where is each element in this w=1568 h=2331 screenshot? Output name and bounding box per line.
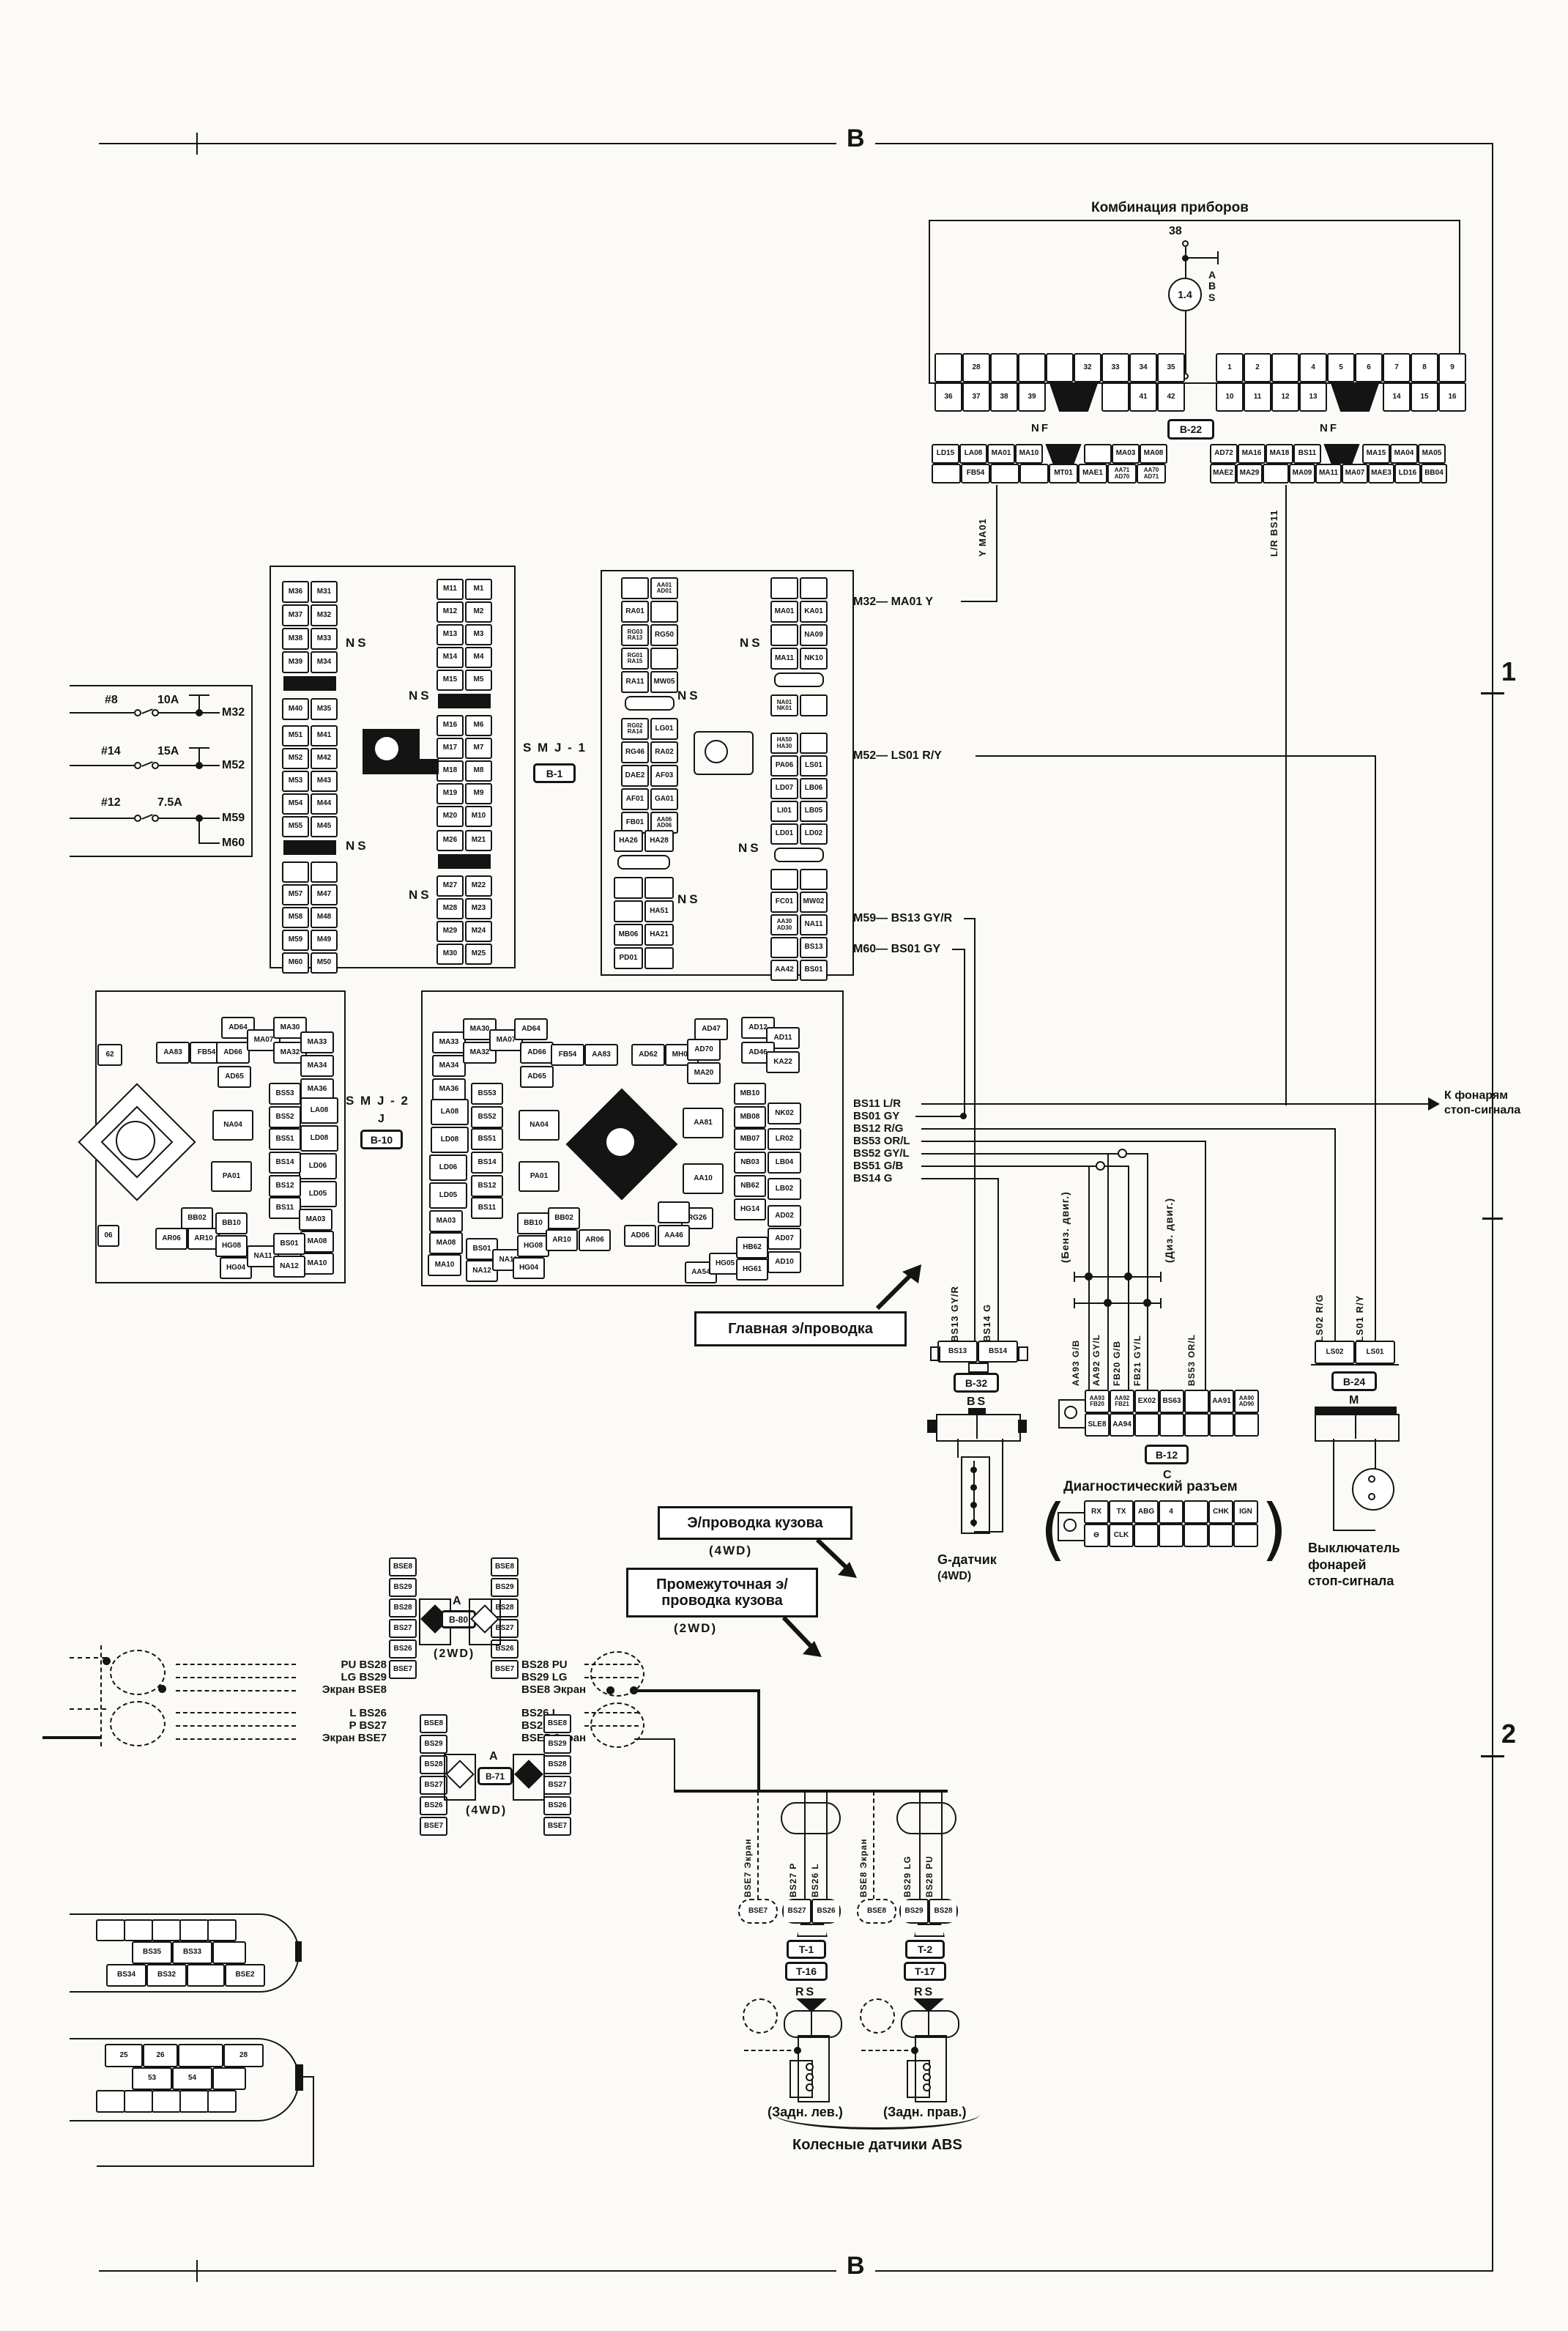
gsensor-caption-sub: (4WD) — [937, 1569, 971, 1584]
pin-cell-blank — [770, 869, 798, 890]
pin-cell: AA30 AD30 — [770, 914, 798, 935]
pin-cell: NA04 — [519, 1110, 560, 1141]
pin-cell: AA10 — [683, 1163, 724, 1194]
pin-cell: BSE2 — [225, 1964, 265, 1987]
pin-cell: BB10 — [215, 1212, 248, 1234]
wire-line — [70, 712, 134, 714]
wire-line — [974, 1531, 1003, 1533]
pin-cell-blank — [621, 577, 649, 599]
pin-cell: DAE2 — [621, 765, 649, 787]
pin-row: M52M42 — [282, 748, 338, 769]
pin-row: BS26 — [389, 1639, 417, 1659]
pin-cell-blank — [124, 1919, 153, 1941]
wire-line-dashed — [70, 1657, 106, 1659]
pin-cell: AF01 — [621, 788, 649, 810]
pin-cell-blank — [178, 2044, 223, 2067]
pin-cell: MA33 — [300, 1031, 334, 1053]
wire-line-dashed — [861, 2050, 915, 2051]
pin-cell: M36 — [282, 581, 309, 603]
pin-cell: BSE7 — [420, 1817, 447, 1836]
paren-right: ) — [1261, 1496, 1288, 1563]
diagram-graphic — [817, 1540, 848, 1569]
pin-row: BSE7 — [491, 1660, 519, 1679]
pin-cell: LD07 — [770, 778, 798, 799]
pair1-left-labels: PU BS28LG BS29Экран BSE8 — [299, 1659, 387, 1696]
smj1-col: M11M1M12M2M13M3M14M4M15M5M16M6M17M7M18M8… — [436, 579, 492, 829]
pin-row: RA11MW05 — [621, 671, 678, 693]
wire-line-dashed — [176, 1664, 296, 1665]
pin-cell: PA01 — [211, 1161, 252, 1192]
pin-cell: AD72 — [1210, 444, 1238, 464]
frame-tick — [1481, 1755, 1504, 1757]
wire-label-vertical: BS27 P — [788, 1828, 798, 1897]
pin-cell-blank — [1134, 1524, 1159, 1547]
pin-cell: RX — [1084, 1500, 1109, 1524]
pin-cell: M2 — [465, 601, 492, 623]
pin-cell: LD01 — [770, 823, 798, 845]
keyway-bar — [283, 676, 335, 691]
junction-cap — [1160, 1298, 1162, 1308]
pin-cell: AA93 FB20 — [1085, 1390, 1110, 1413]
pin-cell: 33 — [1101, 353, 1129, 382]
pin-cell: M54 — [282, 793, 309, 815]
contact-dot — [970, 1484, 977, 1491]
pin-cell: BS11 — [1293, 444, 1321, 464]
arrow-icon — [1428, 1097, 1440, 1111]
keyway-shape — [420, 759, 439, 774]
coil-bump — [806, 2083, 814, 2091]
pin-row: M55M45 — [282, 816, 338, 837]
pin-cell: HA28 — [644, 830, 674, 852]
pin-cell: M12 — [436, 601, 464, 623]
pin-cell: MA05 — [1418, 444, 1446, 464]
pin-cell: M57 — [282, 884, 309, 905]
pin-cell-blank — [1101, 382, 1129, 412]
pin-cell: BS01 — [273, 1233, 305, 1255]
callout-arrow — [870, 1261, 929, 1314]
pin-row: HA51 — [614, 900, 674, 922]
pin-cell: 53 — [132, 2067, 172, 2090]
diag-lower-row: ⊖CLK — [1084, 1524, 1258, 1547]
connector-divider — [976, 1414, 978, 1439]
pin-row: HA50 HA30 — [770, 733, 828, 754]
wire-label-vertical: BS29 LG — [902, 1828, 913, 1897]
pin-cell: 54 — [172, 2067, 212, 2090]
pin-cell: 12 — [1271, 382, 1299, 412]
pin-cell: LD16 — [1394, 464, 1421, 483]
wire-line-dashed — [176, 1725, 296, 1727]
pin-row: M53M43 — [282, 771, 338, 792]
pin-cell: BSE8 — [420, 1714, 447, 1733]
wire-label: BS01 GY — [853, 1110, 910, 1122]
wire-label: BS51 G/B — [853, 1160, 910, 1172]
section-marker-bottom: B — [836, 2250, 875, 2282]
pin-row: BSE7 — [420, 1817, 447, 1836]
pin-cell: AD06 — [624, 1225, 656, 1247]
pin-cell: MA03 — [1112, 444, 1140, 464]
ns-label: NS — [677, 689, 701, 703]
pin-cell: MA10 — [428, 1254, 461, 1276]
pin-cell: IGN — [1233, 1500, 1258, 1524]
connector-code-b24: B-24 — [1331, 1371, 1377, 1391]
pin-row: M54M44 — [282, 793, 338, 815]
pin-cell: AA81 — [683, 1108, 724, 1138]
abs-warning-lamp: 1.4 — [1168, 278, 1202, 311]
pin-cell: MA16 — [1238, 444, 1266, 464]
pin-row: PD01 — [614, 947, 674, 969]
pin-cell: M55 — [282, 816, 309, 837]
shield-pin: BSE8 — [857, 1899, 896, 1924]
pin-row: M38M33 — [282, 628, 338, 650]
pin-cell: 26 — [143, 2044, 178, 2067]
wire-link: M32— MA01 Y — [853, 595, 933, 609]
pin-cell: M58 — [282, 907, 309, 928]
fuse-output: M59 — [222, 811, 245, 826]
pin-cell: M39 — [282, 651, 309, 673]
connector-code-t2: T-2 — [905, 1940, 945, 1959]
wire-line — [997, 1178, 999, 1342]
wire-line — [757, 1689, 760, 1791]
fusebox-edge — [70, 685, 253, 686]
pin-row: RG01 RA15 — [621, 648, 678, 670]
wire-label: LS01 R/Y — [1354, 1267, 1365, 1342]
pin-cell: MA04 — [1390, 444, 1418, 464]
pin-row: BSE8 — [543, 1714, 571, 1733]
pin-cell: AA90 AD90 — [1234, 1390, 1259, 1413]
pin-cell: BS63 — [1159, 1390, 1184, 1413]
sensor-head-divider — [928, 2010, 929, 2035]
frame-tick — [1481, 692, 1504, 694]
pin-cell: MA15 — [1362, 444, 1390, 464]
pin-cell: MA01 — [987, 444, 1015, 464]
smj1-col: M36M31M37M32M38M33M39M34M40M35 — [282, 581, 338, 722]
pin-cell: BS53 — [471, 1083, 503, 1105]
pin-cell: PA01 — [519, 1161, 560, 1192]
pin-row: M36M31 — [282, 581, 338, 603]
pin-cell: MW05 — [650, 671, 678, 693]
pin-row: BS29 — [543, 1735, 571, 1754]
wire-line — [974, 918, 976, 1342]
pin-row: BSE7 — [543, 1817, 571, 1836]
wire-label-lr-bs11: L/R BS11 — [1268, 489, 1279, 557]
pin-cell: MW02 — [800, 892, 828, 913]
smj1-col: M51M41M52M42M53M43M54M44M55M45M57M47M58M… — [282, 725, 338, 975]
pin-cell: BSE7 — [491, 1660, 519, 1679]
wire-line — [919, 1790, 921, 1900]
pin-cell: NA12 — [273, 1256, 305, 1278]
pin-cell: LD05 — [429, 1182, 467, 1209]
shield-wire — [757, 1791, 759, 1900]
junction-dot — [911, 2047, 918, 2054]
pin-cell: MA08 — [1140, 444, 1167, 464]
wire-label: BSE8 Экран — [521, 1683, 586, 1696]
pin-cell-blank — [1184, 1500, 1208, 1524]
pin-cell-blank — [614, 877, 643, 899]
pin-cell: BS29 — [543, 1735, 571, 1754]
connector-code-b32: B-32 — [954, 1373, 999, 1393]
block2-col: HA26HA28HA51MB06HA21PD01 — [614, 830, 674, 971]
b80-column-left: BSE8BS29BS28BS27BS26BSE7 — [389, 1557, 417, 1680]
wire-label: BS14 G — [853, 1172, 910, 1185]
junction-dot — [794, 2047, 801, 2054]
pin-cell: M26 — [436, 830, 464, 851]
pin-row: BSE8 — [420, 1714, 447, 1733]
wire-label-vertical: BSE8 Экран — [858, 1828, 869, 1897]
pin-cell: M22 — [465, 875, 492, 897]
pin-cell: MB08 — [734, 1106, 766, 1128]
pin-row — [614, 877, 674, 899]
coil-bump — [806, 2063, 814, 2071]
pin-row: M17M7 — [436, 738, 492, 759]
wire-line — [915, 1116, 964, 1117]
frame-tick — [196, 2260, 198, 2282]
wire-label: BS13 GY/R — [949, 1267, 960, 1342]
wire-line — [634, 1738, 675, 1740]
pin-row — [282, 839, 338, 860]
pin-cell: LI01 — [770, 801, 798, 822]
ns-label: NS — [346, 636, 369, 651]
pin-cell-blank — [212, 2067, 246, 2090]
pin-row: BS13 — [770, 937, 828, 958]
connector-code-t16: T-16 — [785, 1962, 828, 1981]
wire-line — [159, 712, 220, 714]
junction-cap — [1074, 1272, 1075, 1282]
switch-caption: Выключатель фонарей стоп-сигнала — [1308, 1540, 1400, 1590]
pin-cell: 11 — [1244, 382, 1271, 412]
wire-label-vertical: BS28 PU — [924, 1828, 935, 1897]
ns-label: NS — [409, 689, 432, 703]
keyway-slot — [617, 855, 669, 870]
pin-cell: M60 — [282, 952, 309, 974]
connector-code-b22: B-22 — [1167, 419, 1214, 440]
wire-line-dashed — [176, 1677, 296, 1678]
pin-cell: BS26 — [389, 1639, 417, 1659]
pin-cell: MA07 — [1342, 464, 1368, 483]
cluster-title: Комбинация приборов — [1091, 199, 1249, 217]
pin-cell: NB62 — [734, 1175, 766, 1197]
connector-tab — [914, 1924, 945, 1937]
pin-cell: AD66 — [216, 1042, 250, 1064]
pin-row: M37M32 — [282, 604, 338, 626]
pin-cell-blank — [96, 1919, 125, 1941]
pin-cell: AA71 AD70 — [1107, 464, 1137, 483]
pin-cell: 41 — [1129, 382, 1157, 412]
fuse-terminal — [134, 762, 141, 769]
frame-right-rule — [1492, 143, 1493, 2272]
pin-cell-blank — [1234, 1413, 1259, 1437]
bs-wire-list: BS11 L/RBS01 GYBS12 R/GBS53 OR/LBS52 GY/… — [853, 1097, 910, 1185]
wire-link: M59— BS13 GY/R — [853, 911, 952, 926]
pin-cell: M49 — [311, 930, 338, 951]
pin-cell: GA01 — [650, 788, 678, 810]
pin-row — [282, 861, 338, 883]
pin-row: M51M41 — [282, 725, 338, 746]
pin-cell: BS29 — [420, 1735, 447, 1754]
pin-cell: M28 — [436, 898, 464, 919]
pin-cell: HA51 — [644, 900, 674, 922]
callout-arrow — [778, 1612, 829, 1663]
pin-row: M29M24 — [436, 921, 492, 942]
nf-label-right: NF — [1320, 422, 1339, 436]
keyway-hole — [375, 737, 398, 760]
wire-line — [634, 1689, 760, 1692]
wire-line — [1333, 1530, 1375, 1531]
pin-row: HA26HA28 — [614, 830, 674, 852]
wire-label-vertical: FB20 G/B — [1112, 1310, 1122, 1386]
junction-dot — [196, 709, 203, 716]
pin-cell: BS11 — [269, 1197, 301, 1219]
pin-cell: MA10 — [1015, 444, 1043, 464]
pin-cell: BS28 — [543, 1755, 571, 1774]
pin-cell: LB06 — [800, 778, 828, 799]
pin-cell: 4 — [1299, 353, 1327, 382]
wire-line — [1205, 1141, 1206, 1390]
pin-cell: BS28 — [389, 1598, 417, 1617]
pin-cell: 8 — [1411, 353, 1438, 382]
pin-row: MA11NK10 — [770, 648, 828, 670]
pin-cell: M47 — [311, 884, 338, 905]
smj2-sub: J — [378, 1112, 384, 1127]
pin-cell: RG01 RA15 — [621, 648, 649, 670]
wire-label: Экран BSE8 — [299, 1683, 387, 1696]
junction-dot — [606, 1686, 614, 1694]
pin-row: BSE7 — [389, 1660, 417, 1679]
fuse-number: #12 — [101, 796, 121, 810]
connector-tab — [1315, 1407, 1397, 1414]
pin-cell: 34 — [1129, 353, 1157, 382]
pin-cell-blank — [650, 648, 678, 670]
pin-cell: LD05 — [299, 1181, 337, 1207]
pin-cell: CLK — [1109, 1524, 1134, 1547]
pin-cell: BB02 — [548, 1207, 580, 1229]
pin-cell: 13 — [1299, 382, 1327, 412]
wire-label-y-ma01: Y MA01 — [977, 489, 988, 557]
pin-cell-blank — [179, 1919, 209, 1941]
pin-row: LI01LB05 — [770, 801, 828, 822]
pin-cell: M7 — [465, 738, 492, 759]
pin-cell: MA34 — [300, 1055, 334, 1077]
pin-cell: M59 — [282, 930, 309, 951]
wire-line — [921, 1153, 1147, 1155]
pin-row: RA01 — [621, 601, 678, 623]
pin-row: NA01 NK01 — [770, 694, 828, 716]
pin-cell: M34 — [311, 651, 338, 673]
pin-cell: 9 — [1438, 353, 1466, 382]
pin-row: MB06HA21 — [614, 924, 674, 946]
pin-cell-blank — [1184, 1390, 1209, 1413]
junction-dot — [1143, 1299, 1151, 1307]
pin-cell: FB54 — [551, 1044, 584, 1066]
contact-dot — [970, 1502, 977, 1508]
pin-cell: MB10 — [734, 1083, 766, 1105]
pin-cell: AA70 AD71 — [1137, 464, 1166, 483]
pin-row: M26M21 — [436, 830, 492, 851]
wire-line — [1333, 1439, 1334, 1530]
row-gap — [1185, 382, 1216, 412]
pin-row — [614, 853, 674, 875]
diag-upper-row: AA93 FB20AA92 FB21EX02BS63AA91AA90 AD90 — [1085, 1390, 1259, 1413]
pin-cell: 39 — [1018, 382, 1046, 412]
pin-cell: 10 — [1216, 382, 1244, 412]
pin-cell: M14 — [436, 647, 464, 668]
shield-pin: BSE7 — [738, 1899, 778, 1924]
section-marker-top: B — [836, 123, 875, 155]
shield-symbol — [860, 1998, 895, 2034]
pin-cell-blank — [1159, 1524, 1184, 1547]
callout-body-sub: (4WD) — [709, 1543, 752, 1558]
sensor-head-divider — [811, 2010, 812, 2035]
grommet-hole — [116, 1121, 155, 1160]
pin-row: BS27 — [543, 1776, 571, 1795]
pin-cell: M5 — [465, 670, 492, 691]
fuse-number: #14 — [101, 744, 121, 759]
pin-cell-blank — [207, 2090, 237, 2113]
pin-cell: BSE8 — [543, 1714, 571, 1733]
junction-cap — [1074, 1298, 1075, 1308]
pin-cell: LS01 — [1355, 1341, 1395, 1364]
pin-cell: PD01 — [614, 947, 643, 969]
pin-cell: M53 — [282, 771, 309, 792]
pin-row: BS29 — [491, 1578, 519, 1597]
lamp-name: A B S — [1208, 270, 1216, 303]
pin-row: RG03 RA13RG50 — [621, 624, 678, 646]
keyway-icon — [1321, 444, 1362, 464]
pin-cell: AA91 — [1209, 1390, 1234, 1413]
wire-line — [996, 485, 997, 602]
pin-cell: 06 — [97, 1225, 119, 1247]
frame-bottom-rule — [99, 2270, 1493, 2272]
wire-line — [921, 1141, 1205, 1142]
pin-row: BS27 — [389, 1619, 417, 1638]
pin-cell: RG46 — [621, 741, 649, 763]
pin-row — [770, 846, 828, 867]
pin-cell: M8 — [465, 760, 492, 782]
pin-cell: AD65 — [520, 1066, 554, 1088]
wire-label-vertical: BS26 L — [810, 1828, 820, 1897]
pin-cell: BS52 — [471, 1106, 503, 1128]
pin-cell: BS14 — [471, 1152, 503, 1174]
pin-row: RG46RA02 — [621, 741, 678, 763]
pin-cell-blank — [770, 577, 798, 599]
pin-cell: M45 — [311, 816, 338, 837]
wire-line — [804, 1790, 806, 1900]
pin-cell: AA46 — [658, 1225, 690, 1247]
pin-cell: EX02 — [1134, 1390, 1159, 1413]
diagram-graphic — [784, 1617, 813, 1648]
junction-dot — [1104, 1299, 1112, 1307]
pin-cell: LR02 — [768, 1128, 801, 1150]
smj2-left-edge — [95, 990, 346, 992]
sensor-head — [784, 2010, 842, 2038]
pin-cell: AD10 — [768, 1251, 801, 1273]
pin-cell: LB04 — [768, 1152, 801, 1174]
pin-cell: M51 — [282, 725, 309, 746]
diag-upper-row: SLE8AA94 — [1085, 1413, 1259, 1437]
wire-line — [1285, 485, 1287, 1105]
pin-cell-blank — [1263, 464, 1289, 483]
wire-label: LS02 R/G — [1314, 1267, 1325, 1342]
smj1-name: S M J - 1 — [523, 740, 587, 755]
wire-line-dashed — [744, 2050, 798, 2051]
pin-cell: BS12 — [269, 1175, 301, 1197]
connector-strip-right-bottom: MAE2MA29MA09MA11MA07MAE3LD16BB04 — [1210, 464, 1447, 483]
wire-line — [957, 1439, 959, 1458]
pin-row: AF01GA01 — [621, 788, 678, 810]
wire-line — [70, 818, 134, 819]
wire-label: LG BS29 — [299, 1671, 387, 1683]
pin-cell-blank — [124, 2090, 153, 2113]
splice-circle — [1118, 1149, 1127, 1158]
